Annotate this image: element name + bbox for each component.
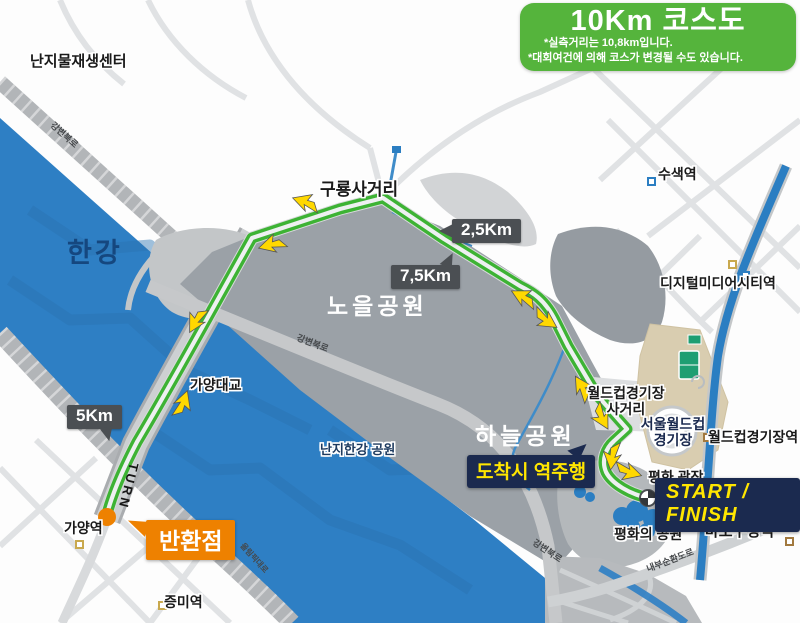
label-worldcup-junction-line1: 월드컵경기장 (580, 385, 672, 401)
label-haneul-park: 하늘공원 (475, 423, 576, 449)
map-title-box: 10Km 코스도 *실측거리는 10,8km입니다. *대회여건에 의해 코스가… (520, 3, 796, 71)
km-badge-2-5: 2,5Km (452, 219, 521, 243)
station-marker-dmc-1 (729, 261, 736, 268)
km-badge-7-5-text: 7,5Km (400, 266, 451, 285)
label-worldcup-junction: 월드컵경기장 사거리 (580, 385, 672, 417)
course-map-poster: TURN 강변북로 강변북로 강변북로 내부순환도로 올림픽대로 10Km 코스… (0, 0, 800, 623)
station-marker-susaek (648, 178, 655, 185)
flag-icon (392, 146, 401, 153)
start-finish-text: START / FINISH (666, 481, 749, 526)
label-han-river: 한강 (67, 238, 123, 269)
label-nanji-hangang-park: 난지한강 공원 (320, 443, 395, 458)
reverse-run-text: 도착시 역주행 (476, 462, 586, 483)
reverse-run-badge: 도착시 역주행 (467, 455, 595, 488)
label-seoul-worldcup-stadium: 서울월드컵 경기장 (634, 416, 712, 448)
label-guryong-junction: 구룡사거리 (320, 180, 398, 200)
km-badge-2-5-text: 2,5Km (461, 220, 512, 239)
label-gayang-bridge: 가양대교 (190, 377, 242, 393)
mini-field-icon (688, 335, 701, 344)
label-worldcup-junction-line2: 사거리 (580, 401, 672, 417)
label-worldcup-station: 월드컵경기장역 (708, 429, 798, 445)
station-marker-gayang (76, 541, 83, 548)
turn-point-text: 반환점 (159, 528, 222, 554)
start-finish-marker (640, 490, 656, 506)
label-seoul-worldcup-line1: 서울월드컵 (634, 416, 712, 432)
map-note-1: *실측거리는 10,8km입니다. (536, 36, 796, 50)
label-susaek-station: 수색역 (658, 166, 697, 182)
km-badge-7-5: 7,5Km (391, 265, 460, 289)
start-finish-badge: START / FINISH (655, 478, 800, 532)
map-title: 10Km 코스도 (520, 6, 796, 36)
turn-point-badge: 반환점 (146, 520, 235, 560)
station-marker-mapo (786, 538, 793, 545)
label-nanji-recycle-center: 난지물재생센터 (30, 53, 127, 70)
map-note-2: *대회여건에 의해 코스가 변경될 수도 있습니다. (520, 51, 796, 65)
label-gayang-station: 가양역 (64, 520, 103, 536)
label-noeul-park: 노을공원 (327, 293, 428, 319)
label-dmc-station: 디지털미디어시티역 (660, 275, 776, 291)
km-badge-5-text: 5Km (76, 406, 113, 425)
km-badge-5: 5Km (67, 405, 122, 429)
label-jeungmi-station: 증미역 (164, 594, 203, 610)
label-seoul-worldcup-line2: 경기장 (634, 432, 712, 448)
km-badge-2-5-pointer (439, 224, 453, 238)
